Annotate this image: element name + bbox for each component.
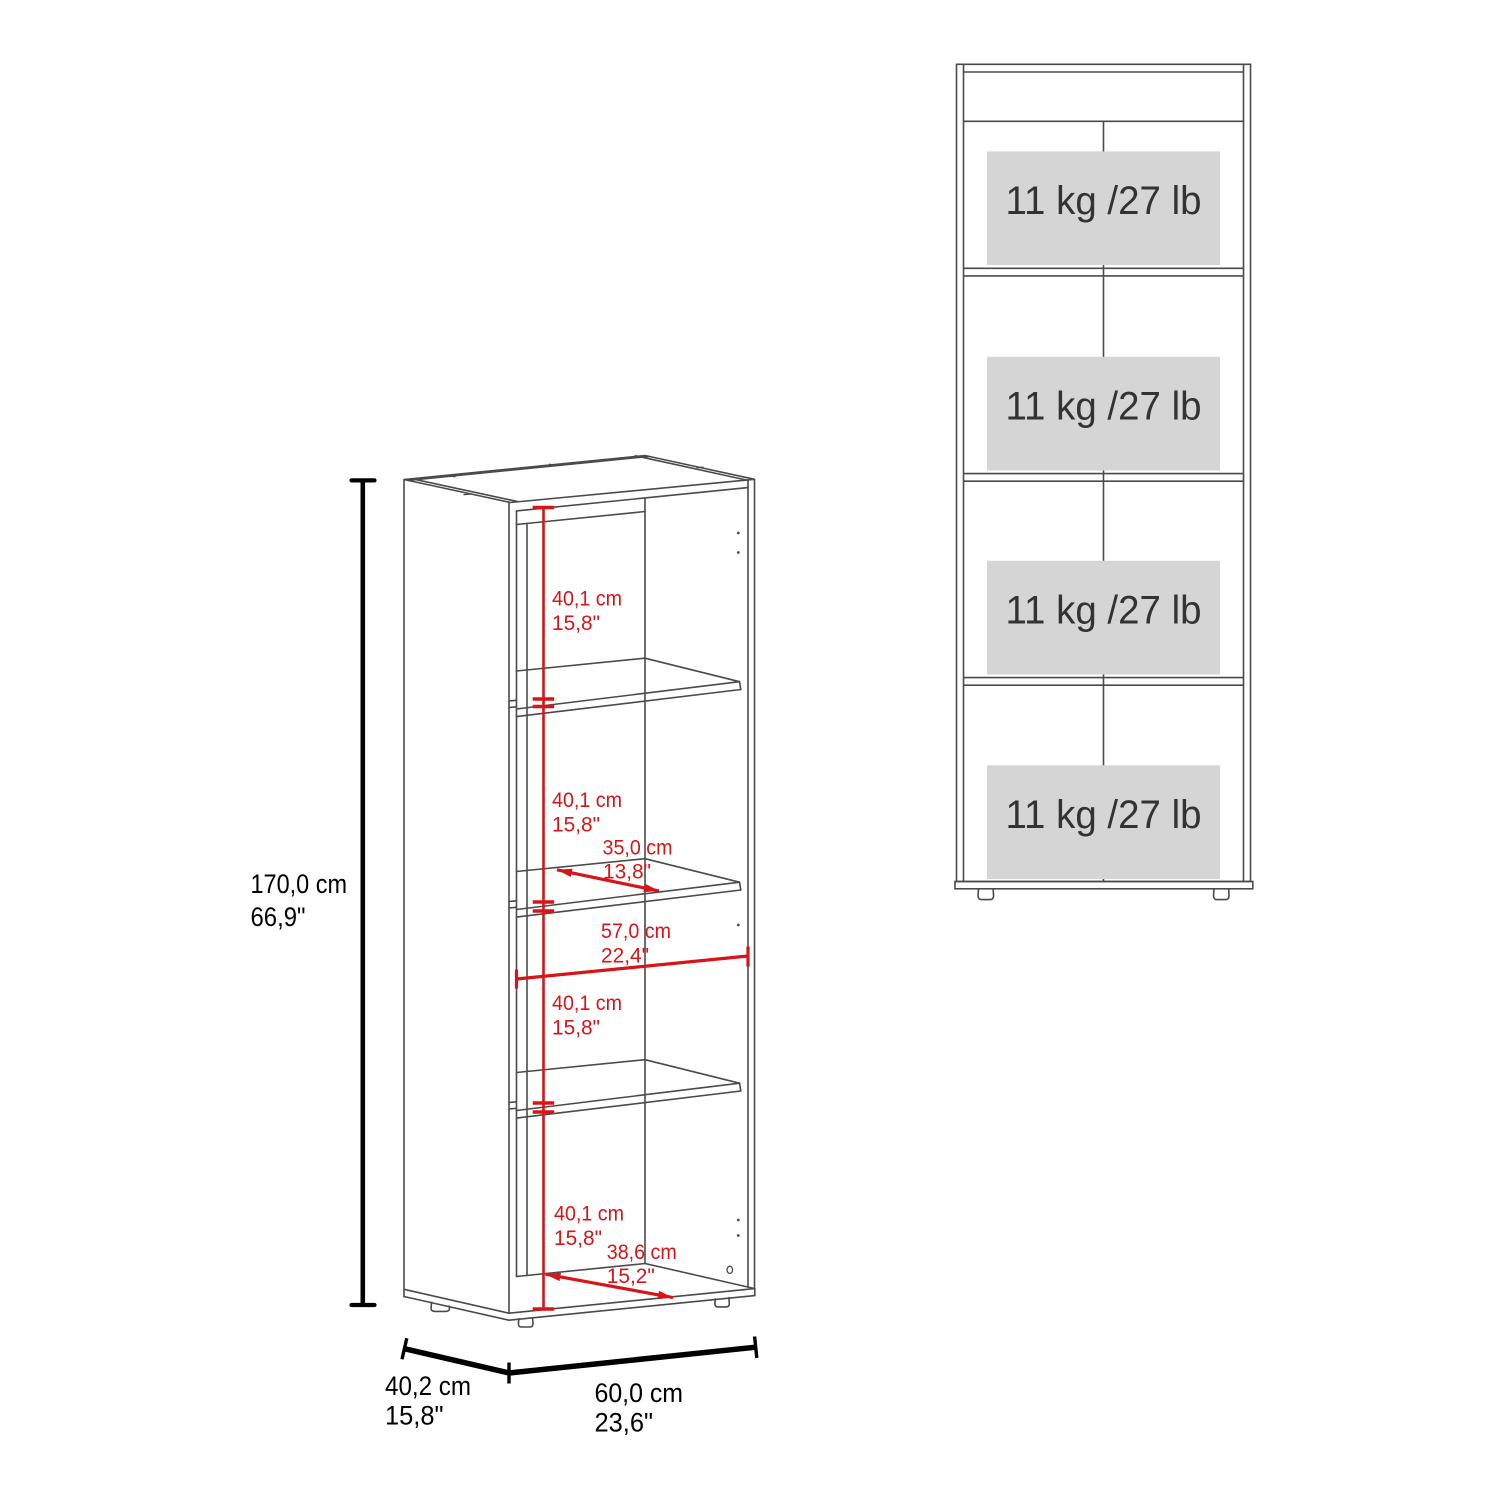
- svg-text:15,8": 15,8": [554, 1226, 602, 1250]
- svg-text:23,6": 23,6": [595, 1407, 654, 1438]
- svg-text:170,0 cm: 170,0 cm: [251, 868, 348, 899]
- svg-text:15,8": 15,8": [385, 1400, 444, 1431]
- svg-text:35,0 cm: 35,0 cm: [603, 836, 673, 860]
- svg-text:38,6 cm: 38,6 cm: [607, 1240, 677, 1264]
- svg-text:40,2 cm: 40,2 cm: [385, 1370, 471, 1401]
- svg-text:57,0 cm: 57,0 cm: [601, 919, 671, 943]
- svg-text:40,1 cm: 40,1 cm: [552, 788, 622, 812]
- svg-text:22,4": 22,4": [601, 944, 649, 968]
- svg-text:15,8": 15,8": [552, 813, 600, 837]
- svg-text:66,9": 66,9": [251, 901, 306, 932]
- svg-text:15,8": 15,8": [552, 611, 600, 635]
- svg-text:15,8": 15,8": [552, 1016, 600, 1040]
- svg-text:11 kg /27 lb: 11 kg /27 lb: [1006, 179, 1202, 223]
- svg-text:11 kg /27 lb: 11 kg /27 lb: [1006, 793, 1202, 837]
- svg-text:15,2": 15,2": [607, 1264, 655, 1288]
- svg-text:11 kg /27 lb: 11 kg /27 lb: [1006, 384, 1202, 428]
- svg-text:13,8": 13,8": [603, 860, 651, 884]
- svg-text:11 kg /27 lb: 11 kg /27 lb: [1006, 588, 1202, 632]
- svg-text:60,0 cm: 60,0 cm: [595, 1377, 684, 1408]
- svg-text:40,1 cm: 40,1 cm: [552, 991, 622, 1015]
- svg-text:40,1 cm: 40,1 cm: [554, 1202, 624, 1226]
- svg-text:40,1 cm: 40,1 cm: [552, 587, 622, 611]
